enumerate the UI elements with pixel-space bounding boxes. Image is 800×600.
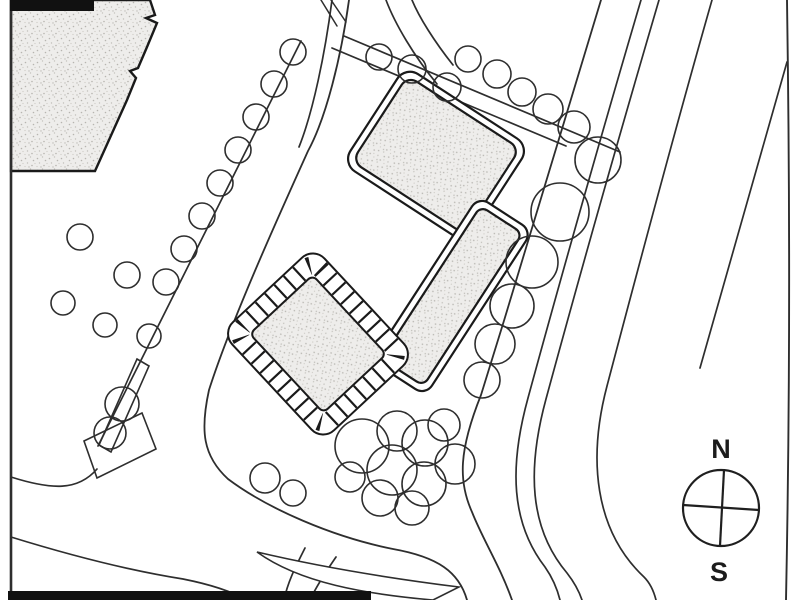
north-label: N [711,434,731,464]
tree [93,313,117,337]
tree [490,284,534,328]
site-plan-canvas: N S [0,0,800,600]
scan-artifact-bar [10,0,94,11]
tree [153,269,179,295]
tree [533,94,563,124]
tree [506,236,558,288]
tree [280,480,306,506]
road-line [412,0,453,65]
south-label: S [710,557,728,587]
tree [362,480,398,516]
road-line [11,537,246,600]
road-line [11,469,97,486]
road-line [700,62,787,368]
tree [335,419,389,473]
tree [67,224,93,250]
tree [435,444,475,484]
road-line [534,0,659,600]
site-plan: N S [0,0,800,600]
tree [366,44,392,70]
plan-graphics [8,0,789,600]
tree [475,324,515,364]
tree [402,420,448,466]
tree [402,462,446,506]
building-northwest [11,0,157,171]
compass-rose: N S [683,434,759,587]
tree [428,409,460,441]
tree [189,203,215,229]
tree [114,262,140,288]
tree [250,463,280,493]
road-line [299,0,332,147]
tree [508,78,536,106]
tree [575,137,621,183]
scan-artifact-bar [8,591,371,600]
tree [395,491,429,525]
tree [483,60,511,88]
tree [171,236,197,262]
tree [455,46,481,72]
building-west-banded [221,247,414,441]
tree [280,39,306,65]
road-line [516,0,641,600]
road-line [786,0,789,600]
tree [243,104,269,130]
planter-strip [99,359,149,452]
tree [335,462,365,492]
tree [51,291,75,315]
